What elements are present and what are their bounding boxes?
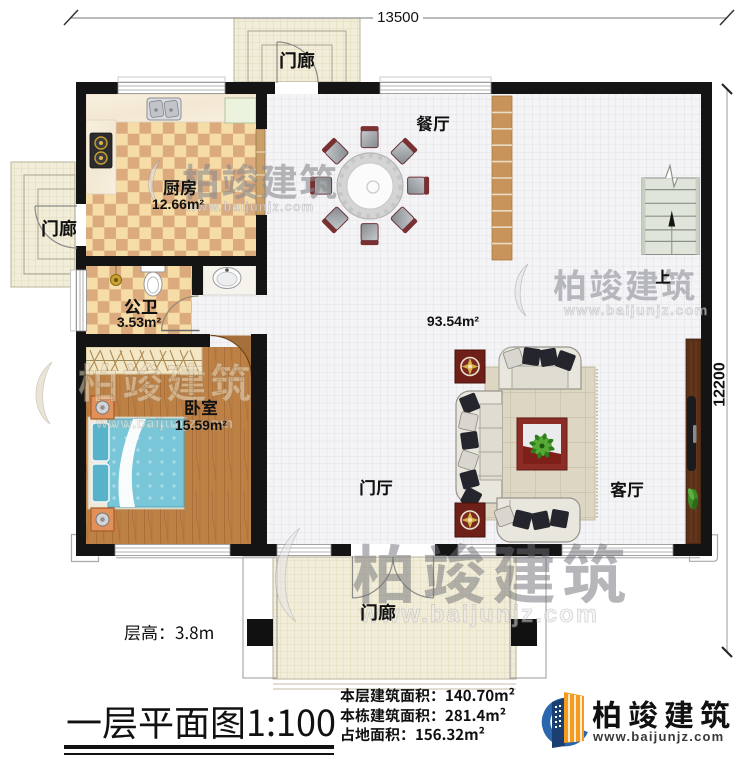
svg-text:www.baijunjz.com: www.baijunjz.com xyxy=(563,302,709,318)
svg-text:3.53m²: 3.53m² xyxy=(117,314,162,330)
svg-text:15.59m²: 15.59m² xyxy=(175,417,227,433)
svg-text:www.baijunjz.com: www.baijunjz.com xyxy=(185,199,314,214)
svg-text:12200: 12200 xyxy=(712,362,729,407)
svg-text:13500: 13500 xyxy=(377,9,419,26)
svg-text:www.baijunjz.com: www.baijunjz.com xyxy=(592,729,724,744)
svg-text:12.66m²: 12.66m² xyxy=(152,196,204,212)
svg-text:www.baijunjz.com: www.baijunjz.com xyxy=(359,601,599,628)
svg-text:93.54m²: 93.54m² xyxy=(427,313,479,329)
